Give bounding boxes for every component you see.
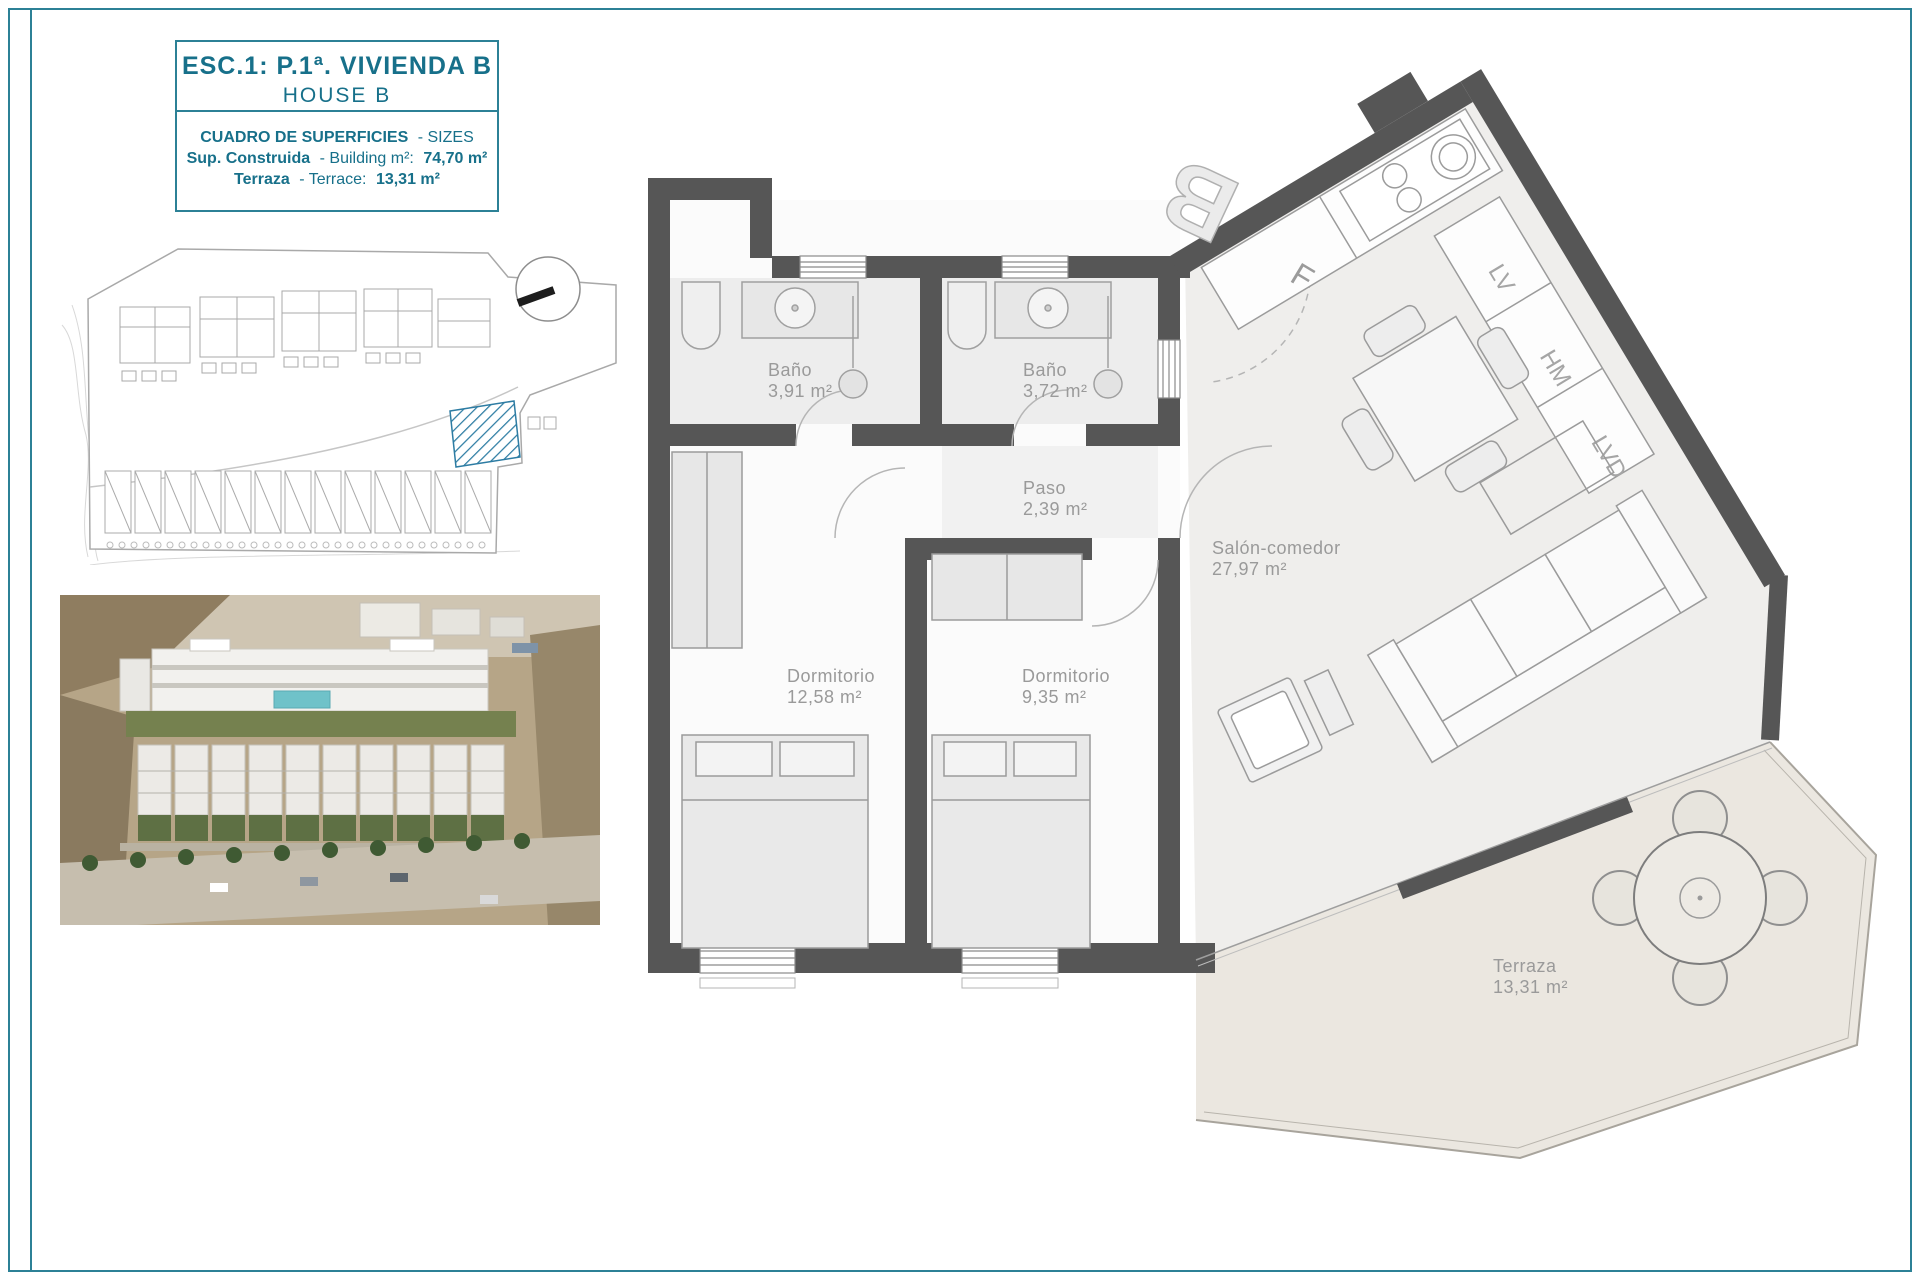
- pillow: [696, 742, 772, 776]
- living-right-wall-lower: [1770, 575, 1779, 740]
- room-label-bedroom1: Dormitorio 12,58 m²: [787, 666, 875, 708]
- room-label-bedroom2: Dormitorio 9,35 m²: [1022, 666, 1110, 708]
- bedroom2-furniture: [932, 554, 1090, 948]
- pillow: [1014, 742, 1076, 776]
- room-label-living: Salón-comedor 27,97 m²: [1212, 538, 1341, 580]
- pillow: [780, 742, 854, 776]
- toilet: [682, 282, 720, 349]
- shower-head: [1094, 370, 1122, 398]
- shower-head: [839, 370, 867, 398]
- floor-plan: F LV HM LVD: [0, 0, 1920, 1280]
- room-label-bath2: Baño 3,72 m²: [1023, 360, 1088, 402]
- toilet: [948, 282, 986, 349]
- plan-sheet: ESC.1: P.1ª. VIVIENDA B HOUSE B CUADRO D…: [0, 0, 1920, 1280]
- pillow: [944, 742, 1006, 776]
- room-label-hallway: Paso 2,39 m²: [1023, 478, 1088, 520]
- room-label-bath1: Baño 3,91 m²: [768, 360, 833, 402]
- room-label-terrace: Terraza 13,31 m²: [1493, 956, 1568, 998]
